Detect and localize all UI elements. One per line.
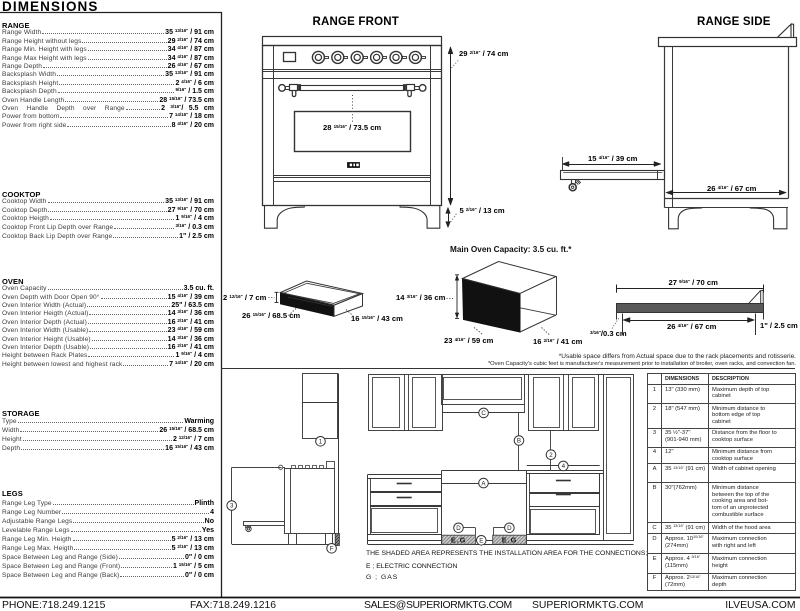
svg-text:E.G: E.G: [502, 536, 517, 545]
svg-text:B: B: [517, 438, 521, 445]
svg-text:E: E: [479, 538, 483, 545]
svg-text:D: D: [456, 525, 461, 532]
svg-text:C: C: [481, 410, 486, 417]
svg-text:1: 1: [319, 439, 323, 446]
svg-text:D: D: [507, 525, 512, 532]
svg-text:4: 4: [562, 463, 566, 470]
svg-text:3: 3: [230, 503, 234, 510]
svg-text:F: F: [330, 546, 334, 553]
svg-text:E.G: E.G: [451, 536, 466, 545]
svg-text:2: 2: [549, 452, 553, 459]
